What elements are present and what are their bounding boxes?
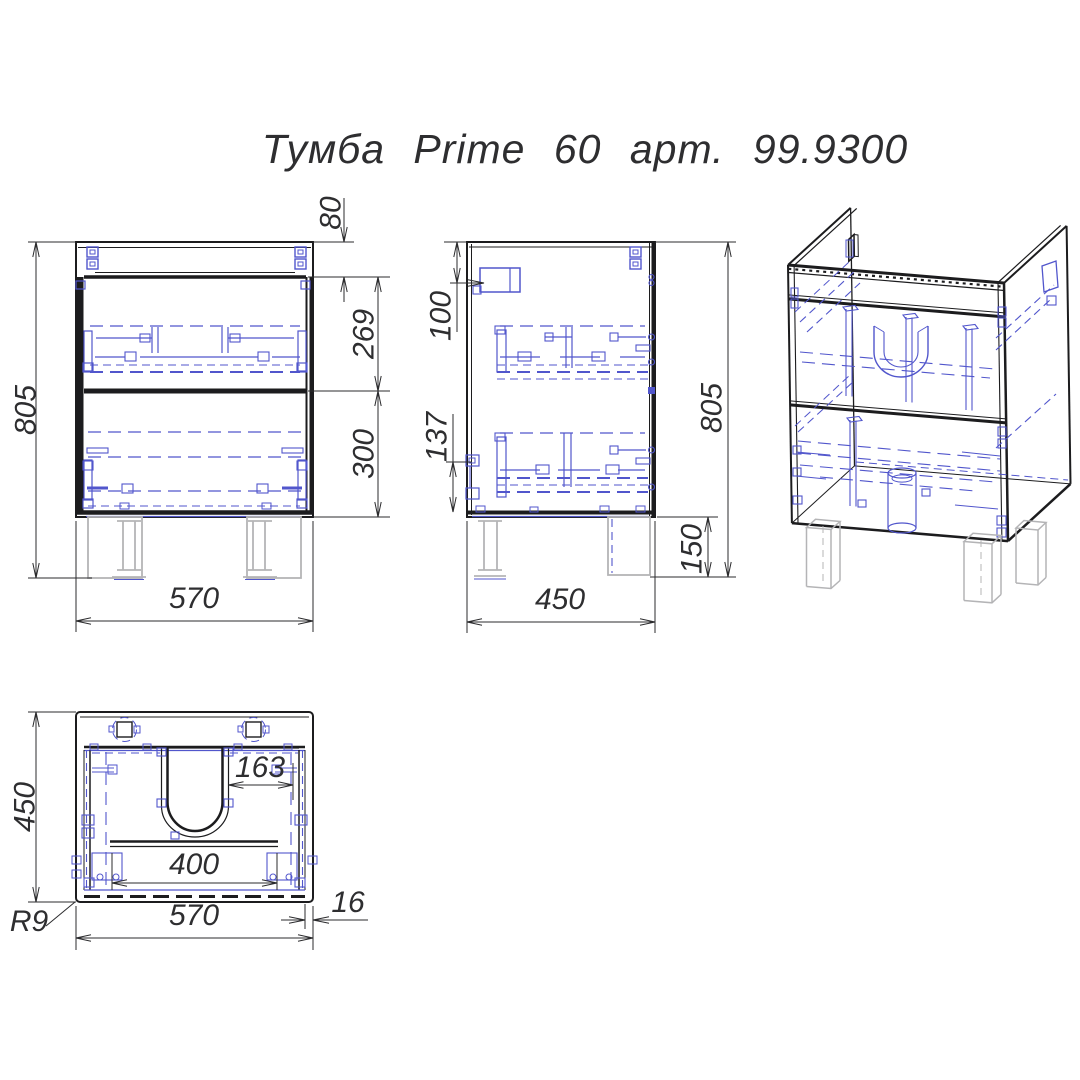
dim-side-slide-offset: 137 [421, 411, 454, 462]
dim-side-depth: 450 [535, 583, 585, 616]
dim-front-lower-drawer: 300 [348, 429, 381, 479]
front-view-legs [88, 517, 301, 580]
side-view-lower-drawer-internals [466, 433, 650, 512]
top-view-hinge-plates [109, 718, 269, 742]
dim-front-upper-drawer: 269 [348, 309, 381, 360]
front-view-cam-locks [76, 247, 310, 289]
dim-side-hanger-offset: 100 [425, 291, 458, 341]
isometric-view [788, 208, 1071, 603]
side-view-upper-drawer-internals [495, 326, 650, 379]
dim-top-brace-length: 400 [169, 848, 219, 881]
dim-side-leg-height: 150 [676, 524, 709, 574]
front-view: 805 80 269 300 [10, 196, 391, 632]
side-view-hanger-bracket [473, 268, 520, 294]
dim-front-top-gap: 80 [315, 196, 348, 230]
front-view-lower-drawer-internals [83, 432, 307, 509]
dim-top-panel-thickness: 16 [331, 886, 365, 919]
technical-drawing-canvas: Тумба Prime 60 арт. 99.9300 [0, 0, 1080, 1080]
dim-top-corner-radius: R9 [10, 905, 49, 938]
side-view-legs [474, 517, 650, 579]
dim-side-overall-height: 805 [696, 383, 729, 433]
drawing-title: Тумба Prime 60 арт. 99.9300 [262, 126, 908, 172]
top-view: 450 163 400 570 [9, 712, 369, 950]
front-view-dimensions: 805 80 269 300 [10, 196, 391, 632]
side-view: 100 137 805 150 450 [421, 242, 737, 633]
front-view-upper-drawer-internals [83, 326, 307, 372]
dim-front-overall-height: 805 [10, 385, 43, 435]
dim-top-depth: 450 [9, 782, 42, 832]
top-view-siphon-channel [157, 748, 233, 839]
front-view-carcass [76, 242, 313, 517]
iso-legs [807, 519, 1047, 603]
side-view-carcass [467, 242, 655, 517]
iso-carcass-outline [788, 208, 1071, 541]
dim-top-width: 570 [169, 899, 219, 932]
dim-front-width: 570 [169, 582, 219, 615]
side-view-hardware [630, 247, 655, 490]
dim-top-siphon-offset: 163 [235, 751, 285, 784]
